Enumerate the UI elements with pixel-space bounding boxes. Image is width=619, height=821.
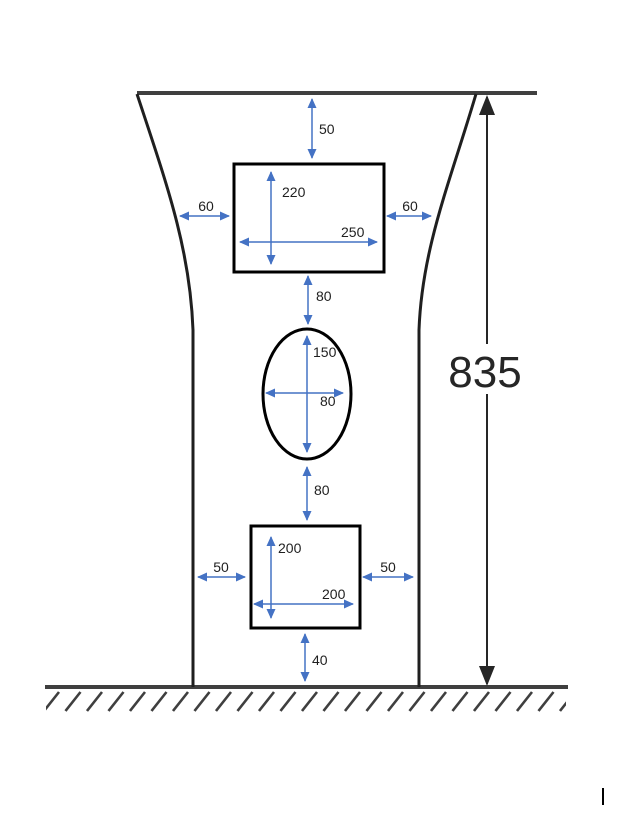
dim-square-right-gap-label: 50: [380, 559, 396, 575]
column-left-outline: [137, 94, 193, 687]
dim-square-left-gap-label: 50: [213, 559, 229, 575]
dim-ellipse-height-label: 150: [313, 344, 337, 360]
bottom-square-opening: [251, 526, 360, 628]
dim-top-gap-label: 50: [319, 121, 335, 137]
dim-square-width-label: 200: [322, 586, 346, 602]
top-rectangle-opening: [234, 164, 384, 272]
dim-ellipse-width-label: 80: [320, 393, 336, 409]
dim-rect-left-gap-label: 60: [198, 198, 214, 214]
dim-square-height-label: 200: [278, 540, 302, 556]
ground-hatching: [46, 689, 566, 712]
dim-rect-ellipse-gap-label: 80: [316, 288, 332, 304]
dim-rect-right-gap-label: 60: [402, 198, 418, 214]
diagram-canvas: 835 50 220 250 60 60 80 150 80 80 200 20…: [0, 0, 619, 821]
dim-square-bottom-gap-label: 40: [312, 652, 328, 668]
dim-rect-width-label: 250: [341, 224, 365, 240]
dim-ellipse-square-gap-label: 80: [314, 482, 330, 498]
overall-height-label: 835: [448, 348, 521, 397]
dim-rect-height-label: 220: [282, 184, 306, 200]
pedestal-dimension-diagram: 835 50 220 250 60 60 80 150 80 80 200 20…: [0, 0, 619, 821]
